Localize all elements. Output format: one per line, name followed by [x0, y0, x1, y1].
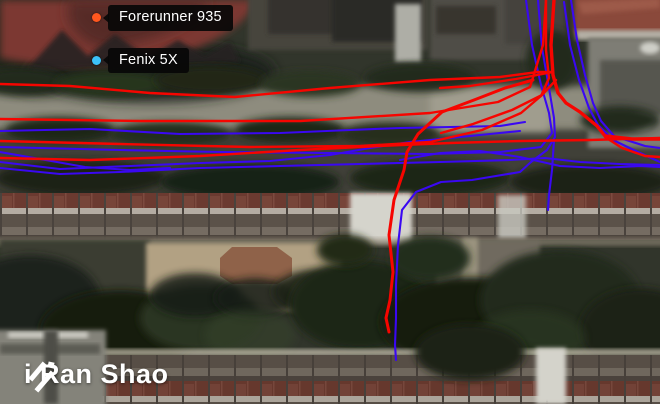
legend-label: Fenix 5X	[108, 48, 189, 74]
iranshao-logo-icon	[24, 359, 60, 395]
satellite-map-view[interactable]: Forerunner 935 Fenix 5X i Ran Shao	[0, 0, 660, 404]
iranshao-watermark: i Ran Shao	[24, 359, 169, 390]
legend-item-forerunner-935: Forerunner 935	[92, 5, 233, 31]
legend-dot	[92, 56, 101, 65]
legend-dot	[92, 13, 101, 22]
legend-label: Forerunner 935	[108, 5, 233, 31]
legend: Forerunner 935 Fenix 5X	[92, 5, 233, 73]
legend-item-fenix-5x: Fenix 5X	[92, 48, 233, 74]
